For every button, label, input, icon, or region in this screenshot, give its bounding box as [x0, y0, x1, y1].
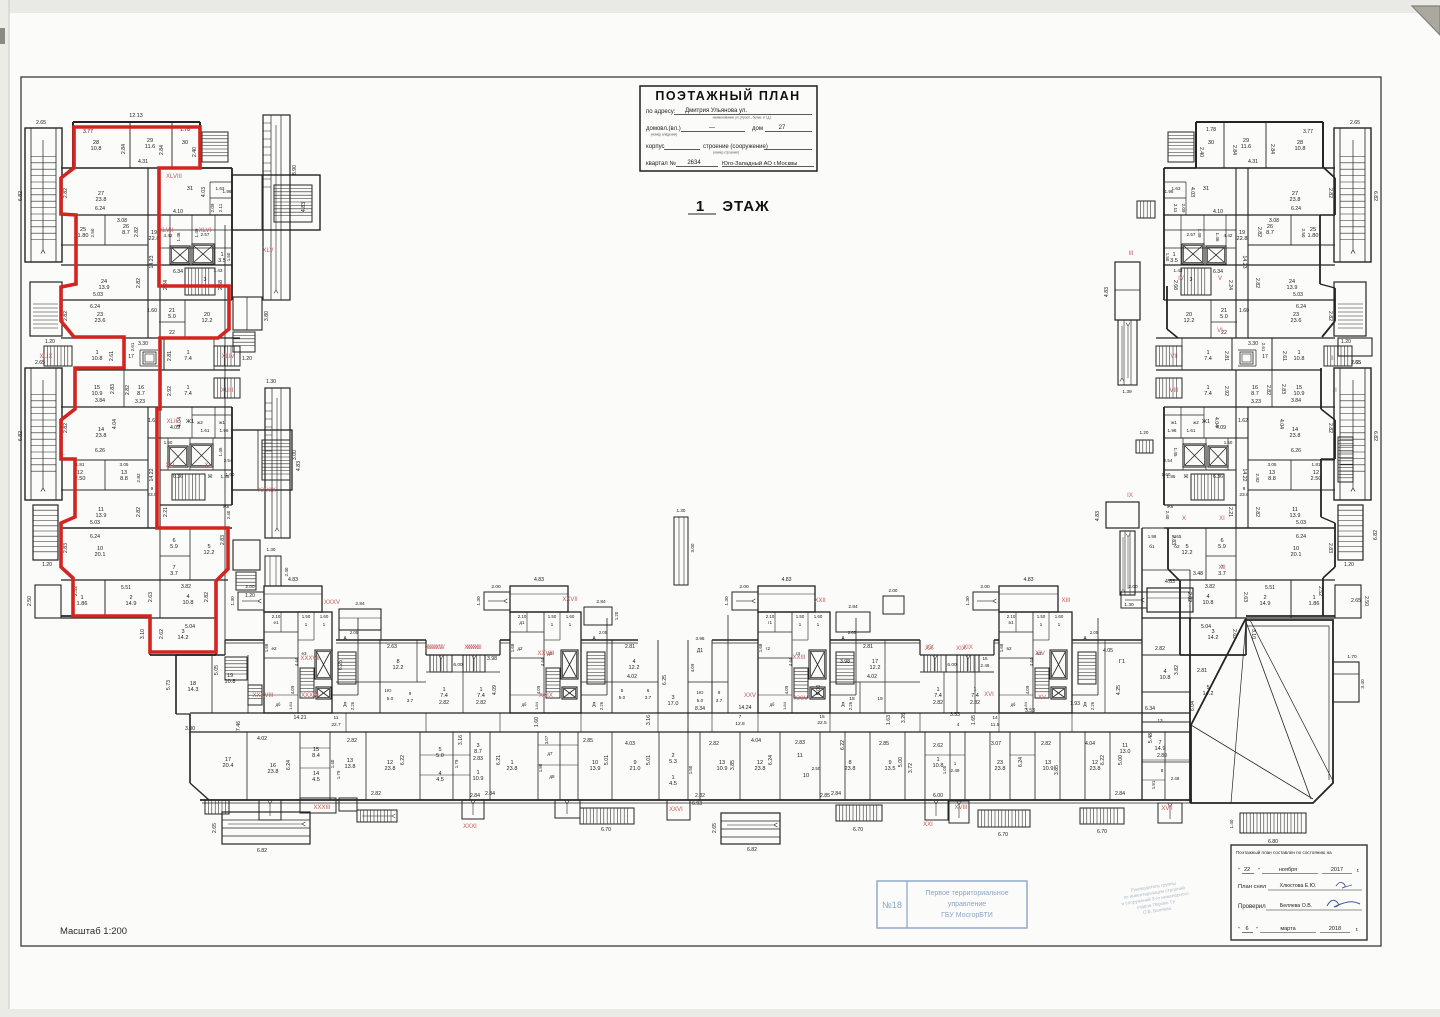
- svg-text:2.26: 2.26: [350, 701, 355, 710]
- svg-text:2.50: 2.50: [90, 228, 95, 237]
- svg-text:1.50: 1.50: [226, 252, 231, 261]
- svg-text:Беляева О.В.: Беляева О.В.: [1280, 903, 1312, 909]
- svg-text:4.83: 4.83: [301, 202, 307, 212]
- svg-text:6.24: 6.24: [286, 760, 292, 770]
- svg-text:6.04: 6.04: [1190, 701, 1196, 711]
- svg-text:корпус: корпус: [646, 144, 665, 150]
- svg-text:5.9: 5.9: [170, 544, 178, 550]
- svg-text:5.03: 5.03: [90, 520, 100, 526]
- svg-text:3.84: 3.84: [1291, 398, 1301, 404]
- svg-text:1.86: 1.86: [77, 601, 88, 607]
- svg-text:е1: е1: [273, 620, 279, 625]
- svg-text:г2: г2: [766, 646, 771, 651]
- svg-text:2.82: 2.82: [134, 227, 140, 237]
- svg-text:2.46: 2.46: [981, 663, 990, 668]
- svg-text:2.05: 2.05: [599, 630, 608, 635]
- svg-text:4.25: 4.25: [1116, 685, 1122, 695]
- svg-text:2.00: 2.00: [245, 584, 255, 590]
- svg-text:5.73: 5.73: [166, 680, 172, 690]
- svg-text:4.03: 4.03: [1189, 187, 1195, 197]
- svg-text:1.85: 1.85: [1167, 474, 1176, 479]
- svg-text:8.7: 8.7: [1251, 391, 1259, 397]
- svg-text:2.80: 2.80: [1157, 753, 1167, 759]
- svg-text:8.8: 8.8: [120, 476, 128, 482]
- svg-text:4.42: 4.42: [1224, 233, 1233, 238]
- svg-text:1.05: 1.05: [942, 765, 947, 774]
- svg-text:10.8: 10.8: [225, 679, 236, 685]
- svg-text:1.84: 1.84: [534, 701, 539, 710]
- svg-text:6.25: 6.25: [338, 660, 344, 670]
- svg-text:4.04: 4.04: [1213, 417, 1219, 427]
- svg-text:3: 3: [204, 277, 207, 283]
- svg-text:1.40: 1.40: [330, 759, 335, 768]
- svg-text:2.40: 2.40: [226, 510, 231, 519]
- svg-text:XXVI: XXVI: [669, 807, 683, 813]
- svg-text:4.83: 4.83: [781, 577, 791, 583]
- svg-text:2.84: 2.84: [470, 793, 480, 799]
- svg-text:г.: г.: [1356, 927, 1359, 933]
- svg-text:3.07: 3.07: [544, 735, 549, 744]
- svg-text:3.7: 3.7: [645, 695, 652, 700]
- svg-text:23.8: 23.8: [507, 766, 518, 772]
- svg-text:8.7: 8.7: [474, 749, 482, 755]
- svg-text:1.63: 1.63: [886, 715, 892, 725]
- svg-text:5.0: 5.0: [436, 753, 444, 759]
- svg-text:2.62: 2.62: [933, 743, 943, 749]
- svg-text:4.44: 4.44: [294, 657, 299, 666]
- svg-text:XLIV: XLIV: [221, 354, 234, 360]
- svg-text:2.21: 2.21: [1227, 507, 1233, 517]
- svg-text:XV: XV: [1038, 695, 1046, 701]
- svg-text:1: 1: [305, 622, 308, 628]
- svg-text:б1: б1: [1149, 544, 1155, 550]
- svg-text:1.61: 1.61: [1187, 428, 1196, 433]
- svg-text:1.46: 1.46: [1215, 233, 1220, 242]
- svg-text:2.82: 2.82: [439, 700, 449, 706]
- svg-text:2.40: 2.40: [284, 567, 289, 576]
- svg-text:(номер владения): (номер владения): [651, 133, 677, 137]
- svg-text:2.84: 2.84: [831, 791, 841, 797]
- svg-text:1.43: 1.43: [1174, 268, 1183, 273]
- svg-text:7.46: 7.46: [236, 721, 242, 731]
- svg-text:1.79: 1.79: [336, 770, 341, 779]
- svg-text:12.2: 12.2: [204, 550, 215, 556]
- svg-text:г1: г1: [768, 620, 773, 625]
- svg-text:3.82: 3.82: [1205, 584, 1215, 590]
- svg-text:2.83: 2.83: [63, 543, 69, 553]
- svg-text:6.24: 6.24: [90, 534, 100, 540]
- svg-text:4.44: 4.44: [540, 657, 545, 666]
- svg-text:6.82: 6.82: [1372, 191, 1378, 201]
- svg-text:10.9: 10.9: [1294, 391, 1305, 397]
- svg-text:2.26: 2.26: [599, 701, 604, 710]
- svg-text:6.82: 6.82: [18, 431, 24, 441]
- svg-text:22.5: 22.5: [817, 720, 827, 726]
- svg-text:1.84: 1.84: [782, 701, 787, 710]
- svg-text:4.44: 4.44: [1029, 657, 1034, 666]
- svg-text:XXIX: XXIX: [539, 693, 553, 699]
- svg-text:14.21: 14.21: [294, 715, 307, 721]
- svg-text:2.57: 2.57: [1187, 232, 1196, 237]
- svg-text:6.00: 6.00: [947, 662, 957, 668]
- svg-text:3.30: 3.30: [138, 341, 148, 347]
- svg-text:2.26: 2.26: [848, 701, 853, 710]
- svg-text:12.2: 12.2: [202, 318, 213, 324]
- svg-text:13.9: 13.9: [99, 285, 110, 291]
- svg-text:2.63: 2.63: [148, 592, 154, 602]
- svg-text:Поэтажный план составлен по со: Поэтажный план составлен по состоянию на: [1236, 849, 1332, 855]
- svg-text:2.10: 2.10: [1007, 614, 1016, 619]
- svg-text:4.83: 4.83: [1165, 579, 1175, 585]
- svg-text:2.82: 2.82: [136, 507, 142, 517]
- svg-text:дом: дом: [752, 126, 763, 132]
- svg-text:7.4: 7.4: [477, 693, 485, 699]
- svg-text:2.82: 2.82: [136, 278, 142, 288]
- svg-text:2.81: 2.81: [1223, 351, 1229, 361]
- svg-text:10.9: 10.9: [92, 391, 103, 397]
- svg-text:2017: 2017: [1331, 867, 1343, 873]
- svg-text:2.65: 2.65: [36, 120, 46, 126]
- svg-text:2.92: 2.92: [167, 386, 173, 396]
- svg-text:2.82: 2.82: [63, 423, 69, 433]
- svg-text:1.30: 1.30: [965, 596, 971, 606]
- svg-text:Ж6: Ж6: [1167, 504, 1174, 509]
- svg-text:1.96: 1.96: [1168, 428, 1177, 433]
- svg-text:13.9: 13.9: [1290, 513, 1301, 519]
- svg-text:13.9: 13.9: [1287, 285, 1298, 291]
- svg-text:1.61: 1.61: [201, 428, 210, 433]
- svg-text:2.48: 2.48: [1171, 776, 1180, 781]
- svg-text:6.26: 6.26: [95, 448, 105, 454]
- svg-text:II: II: [1330, 356, 1334, 362]
- svg-text:2.85: 2.85: [583, 738, 593, 744]
- svg-text:17.0: 17.0: [668, 701, 679, 707]
- svg-text:1.60: 1.60: [814, 614, 823, 619]
- svg-text:2.83: 2.83: [1280, 384, 1286, 394]
- svg-text:10.9: 10.9: [1043, 766, 1054, 772]
- svg-text:2.84: 2.84: [848, 604, 858, 610]
- svg-text:IX: IX: [1127, 493, 1133, 499]
- svg-text:1.62: 1.62: [1238, 418, 1248, 424]
- svg-text:XXXIX: XXXIX: [258, 488, 276, 494]
- svg-text:1.50: 1.50: [1224, 440, 1233, 445]
- svg-text:2.82: 2.82: [1254, 473, 1260, 483]
- svg-text:1.50: 1.50: [302, 614, 311, 619]
- svg-text:8.7: 8.7: [137, 391, 145, 397]
- svg-text:6.24: 6.24: [1291, 206, 1301, 212]
- svg-text:13.9: 13.9: [96, 513, 107, 519]
- svg-text:2.65: 2.65: [1351, 360, 1361, 366]
- svg-text:6.36: 6.36: [173, 474, 183, 480]
- svg-text:3.40: 3.40: [1360, 679, 1366, 689]
- svg-text:1.81: 1.81: [1312, 462, 1321, 467]
- svg-text:1.96: 1.96: [220, 428, 229, 433]
- svg-text:6.21: 6.21: [496, 755, 502, 765]
- svg-text:2.81: 2.81: [863, 644, 873, 650]
- svg-text:22.7: 22.7: [331, 722, 341, 728]
- svg-text:ж2: ж2: [197, 420, 203, 425]
- svg-text:17: 17: [1262, 354, 1268, 360]
- svg-text:1.50: 1.50: [164, 440, 173, 445]
- svg-text:2.82: 2.82: [347, 738, 357, 744]
- svg-text:2.82: 2.82: [371, 791, 381, 797]
- svg-text:2.82: 2.82: [136, 473, 142, 483]
- svg-text:XLIII: XLIII: [221, 388, 234, 394]
- svg-text:8.7: 8.7: [122, 230, 130, 236]
- svg-text:3.08: 3.08: [117, 218, 127, 224]
- svg-text:XXXII: XXXII: [464, 645, 480, 651]
- svg-text:6.70: 6.70: [998, 832, 1008, 838]
- svg-text:XXIII: XXIII: [792, 655, 805, 661]
- svg-text:2.82: 2.82: [1327, 311, 1333, 321]
- svg-text:Г1: Г1: [1119, 659, 1125, 665]
- svg-text:1.60: 1.60: [1239, 308, 1249, 314]
- svg-text:ЭТАЖ: ЭТАЖ: [722, 198, 769, 215]
- svg-text:2.84: 2.84: [1115, 791, 1125, 797]
- svg-text:3.10: 3.10: [140, 629, 146, 639]
- svg-text:2.82: 2.82: [1155, 646, 1165, 652]
- svg-text:10.8: 10.8: [1295, 146, 1306, 152]
- svg-text:XVI: XVI: [984, 692, 994, 698]
- svg-text:6.24: 6.24: [1018, 757, 1024, 767]
- svg-text:Проверил: Проверил: [1238, 904, 1266, 910]
- svg-text:1: 1: [696, 198, 704, 215]
- svg-text:23.0: 23.0: [1239, 492, 1249, 498]
- svg-text:1.60: 1.60: [1055, 614, 1064, 619]
- svg-text:VI: VI: [1217, 328, 1223, 334]
- svg-text:квартал №: квартал №: [646, 160, 676, 167]
- svg-text:12.2: 12.2: [629, 665, 640, 671]
- svg-text:4.10: 4.10: [1213, 209, 1223, 215]
- svg-text:4.03: 4.03: [201, 187, 207, 197]
- svg-text:5.03: 5.03: [1293, 292, 1303, 298]
- svg-text:4.09: 4.09: [1025, 685, 1030, 694]
- svg-text:2.83: 2.83: [473, 756, 483, 762]
- svg-text:VIII: VIII: [1169, 388, 1178, 394]
- svg-text:2.65: 2.65: [212, 823, 218, 833]
- svg-text:20.1: 20.1: [95, 552, 106, 558]
- svg-text:13.5: 13.5: [885, 766, 896, 772]
- svg-text:1.50: 1.50: [1165, 253, 1170, 262]
- svg-text:2.00: 2.00: [739, 584, 749, 590]
- svg-text:3.7: 3.7: [407, 698, 414, 703]
- svg-text:План снял: План снял: [1238, 884, 1266, 890]
- svg-text:9: 9: [409, 691, 412, 696]
- svg-text:6: 6: [1245, 926, 1248, 932]
- svg-text:3.23: 3.23: [135, 399, 145, 405]
- svg-text:1.43: 1.43: [214, 268, 223, 273]
- svg-text:Д1: Д1: [697, 648, 703, 654]
- svg-text:3.7: 3.7: [170, 571, 178, 577]
- svg-text:2.81: 2.81: [625, 644, 635, 650]
- svg-text:Хлюстова Е.Ю.: Хлюстова Е.Ю.: [1280, 883, 1317, 889]
- svg-text:8: 8: [1161, 768, 1164, 773]
- svg-text:5.0: 5.0: [697, 698, 704, 703]
- svg-text:14.23: 14.23: [149, 255, 155, 268]
- svg-text:2.81: 2.81: [167, 351, 173, 361]
- svg-text:10.8: 10.8: [91, 146, 102, 152]
- svg-text:1.60: 1.60: [320, 614, 329, 619]
- svg-text:2.84: 2.84: [121, 144, 127, 154]
- svg-text:3.23: 3.23: [1251, 399, 1261, 405]
- svg-text:6.70: 6.70: [601, 827, 611, 833]
- svg-text:2.82: 2.82: [1254, 278, 1260, 288]
- svg-text:XI: XI: [1219, 516, 1225, 522]
- svg-text:1.80: 1.80: [1308, 233, 1319, 239]
- svg-text:XXVIII: XXVIII: [537, 651, 554, 657]
- svg-text:2.84: 2.84: [1269, 144, 1275, 154]
- svg-text:3.77: 3.77: [1303, 129, 1313, 135]
- svg-text:г.: г.: [1357, 868, 1360, 874]
- svg-text:30: 30: [1208, 140, 1214, 146]
- svg-text:14.23: 14.23: [1241, 256, 1247, 269]
- svg-text:5.00: 5.00: [816, 685, 822, 695]
- svg-text:4.09: 4.09: [492, 685, 498, 695]
- svg-text:1Ю: 1Ю: [697, 690, 704, 695]
- svg-text:5.9: 5.9: [1218, 544, 1226, 550]
- svg-text:5.51: 5.51: [1265, 585, 1275, 591]
- svg-text:6.22: 6.22: [1100, 755, 1106, 765]
- svg-text:5: 5: [621, 688, 624, 693]
- svg-text:15: 15: [819, 714, 825, 720]
- svg-text:2.50: 2.50: [1301, 229, 1306, 238]
- svg-text:III: III: [1128, 251, 1133, 257]
- svg-text:2.81: 2.81: [1197, 668, 1207, 674]
- svg-text:2.00: 2.00: [889, 588, 898, 593]
- svg-text:2.54: 2.54: [1164, 458, 1173, 463]
- svg-text:1.68: 1.68: [758, 643, 763, 652]
- svg-text:наименование ул. (просп., буль: наименование ул. (просп., бульв. и т.д.): [713, 116, 772, 120]
- svg-text:2.40: 2.40: [192, 147, 198, 157]
- svg-text:1: 1: [569, 622, 572, 628]
- svg-text:1.45: 1.45: [1173, 448, 1178, 457]
- svg-text:1.30: 1.30: [677, 508, 686, 513]
- svg-text:14.24: 14.24: [739, 705, 752, 711]
- svg-text:2.82: 2.82: [1256, 227, 1262, 237]
- svg-text:12.2: 12.2: [1184, 318, 1195, 324]
- svg-text:4.83: 4.83: [288, 577, 298, 583]
- svg-text:6.34: 6.34: [1145, 706, 1155, 712]
- svg-text:2634: 2634: [687, 160, 701, 166]
- svg-text:1.79: 1.79: [454, 759, 459, 768]
- svg-text:дб: дб: [770, 702, 775, 707]
- svg-text:1.70: 1.70: [1347, 654, 1357, 660]
- svg-text:6.82: 6.82: [747, 847, 757, 853]
- svg-text:4.83: 4.83: [1095, 511, 1101, 521]
- svg-text:2.11: 2.11: [1173, 204, 1178, 213]
- svg-text:XIII: XIII: [1061, 598, 1070, 604]
- svg-text:2.50: 2.50: [1363, 596, 1369, 606]
- svg-text:1.20: 1.20: [614, 611, 619, 620]
- svg-text:7.4: 7.4: [184, 391, 192, 397]
- svg-text:Юго-Западный АО г.Москвы: Юго-Западный АО г.Москвы: [722, 160, 797, 167]
- svg-text:4.31: 4.31: [138, 159, 148, 165]
- svg-text:6: 6: [647, 688, 650, 693]
- svg-text:6.36: 6.36: [1213, 474, 1223, 480]
- svg-text:2.83: 2.83: [795, 740, 805, 746]
- svg-text:6.26: 6.26: [1291, 448, 1301, 454]
- svg-text:23.8: 23.8: [96, 433, 107, 439]
- svg-text:1.86: 1.86: [1309, 601, 1320, 607]
- svg-text:2.82: 2.82: [1254, 507, 1260, 517]
- svg-text:6.70: 6.70: [853, 827, 863, 833]
- svg-text:14.3: 14.3: [188, 687, 199, 693]
- svg-text:30: 30: [182, 140, 188, 146]
- svg-text:2.50: 2.50: [1311, 476, 1322, 482]
- svg-text:XLI: XLI: [165, 463, 174, 469]
- svg-text:XLVI: XLVI: [199, 228, 212, 234]
- svg-text:1.20: 1.20: [1341, 339, 1351, 345]
- svg-text:Ж: Ж: [1184, 474, 1189, 480]
- svg-text:3.98: 3.98: [840, 659, 850, 665]
- svg-text:10.8: 10.8: [1294, 356, 1305, 362]
- svg-text:11: 11: [797, 753, 803, 759]
- svg-text:XLIX: XLIX: [39, 354, 52, 360]
- svg-text:XXXV: XXXV: [324, 600, 340, 606]
- svg-text:Ж1: Ж1: [186, 419, 194, 425]
- svg-text:10: 10: [803, 773, 809, 779]
- svg-text:4.09: 4.09: [784, 685, 789, 694]
- svg-text:5.51: 5.51: [121, 585, 131, 591]
- svg-text:6.22: 6.22: [400, 755, 406, 765]
- svg-text:Ж6: Ж6: [223, 504, 230, 509]
- svg-text:2.63: 2.63: [1242, 592, 1248, 602]
- svg-text:1.78: 1.78: [1206, 127, 1216, 133]
- svg-text:4.83: 4.83: [1104, 287, 1110, 297]
- svg-text:3.05: 3.05: [1268, 462, 1277, 467]
- svg-text:5.03: 5.03: [1296, 520, 1306, 526]
- svg-text:14.2: 14.2: [178, 635, 189, 641]
- svg-text:5.03: 5.03: [93, 292, 103, 298]
- svg-text:2.50: 2.50: [812, 766, 821, 771]
- svg-text:2.05: 2.05: [350, 630, 359, 635]
- svg-text:31: 31: [187, 186, 193, 192]
- svg-text:4: 4: [957, 722, 960, 727]
- svg-text:6.82: 6.82: [18, 191, 24, 201]
- svg-text:2.00: 2.00: [980, 584, 990, 590]
- svg-text:": ": [1258, 868, 1260, 874]
- svg-text:6.34: 6.34: [1213, 269, 1223, 275]
- svg-text:2.11: 2.11: [218, 203, 223, 212]
- svg-text:2.82: 2.82: [1327, 423, 1333, 433]
- svg-text:4.04: 4.04: [1085, 741, 1095, 747]
- svg-text:дб: дб: [522, 702, 527, 707]
- svg-text:XIV: XIV: [1035, 651, 1045, 657]
- svg-text:2.82: 2.82: [709, 741, 719, 747]
- svg-text:XXI: XXI: [923, 822, 933, 828]
- svg-text:11: 11: [334, 715, 339, 721]
- svg-text:4.09: 4.09: [690, 663, 695, 672]
- svg-text:2.24: 2.24: [1227, 280, 1233, 290]
- svg-text:1.60: 1.60: [534, 717, 540, 727]
- svg-text:Ж: Ж: [208, 474, 213, 480]
- svg-text:6.00: 6.00: [933, 793, 943, 799]
- svg-text:10.8: 10.8: [1203, 600, 1214, 606]
- svg-text:1.20: 1.20: [1140, 430, 1149, 435]
- svg-text:5.0: 5.0: [387, 696, 394, 701]
- svg-text:23.8: 23.8: [755, 766, 766, 772]
- svg-text:8.7: 8.7: [1266, 230, 1274, 236]
- svg-text:2.62: 2.62: [159, 629, 165, 639]
- svg-text:1.84: 1.84: [288, 701, 293, 710]
- svg-text:XLVIII: XLVIII: [166, 174, 182, 180]
- svg-text:е2: е2: [271, 646, 277, 651]
- svg-text:XXIV: XXIV: [794, 696, 808, 702]
- svg-text:11.6: 11.6: [1241, 144, 1251, 150]
- svg-text:2.63: 2.63: [387, 644, 397, 650]
- svg-text:23.8: 23.8: [995, 766, 1006, 772]
- svg-text:4.02: 4.02: [627, 674, 637, 680]
